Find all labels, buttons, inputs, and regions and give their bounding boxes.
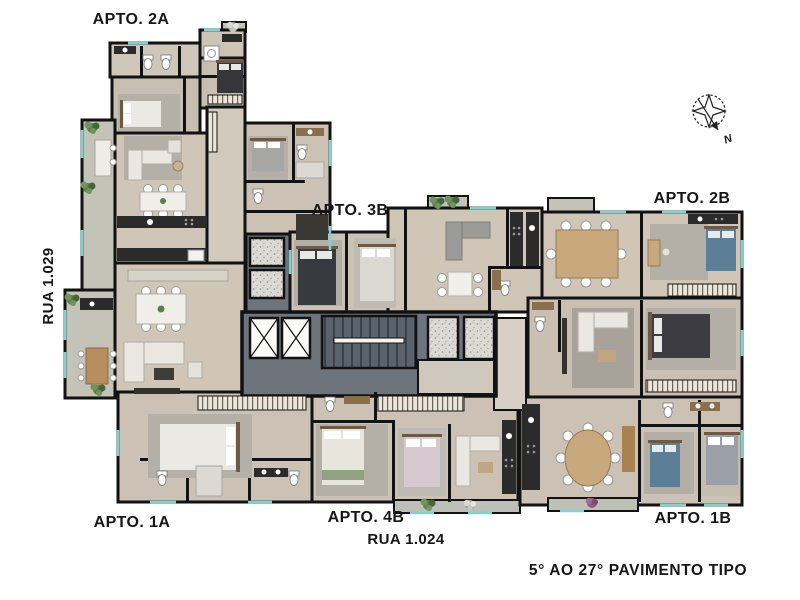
toilet-icon bbox=[500, 281, 510, 296]
floor-plan-page: N APTO. 2A APTO. 3B APTO. 2B APTO. 1A AP… bbox=[0, 0, 800, 600]
closet bbox=[208, 95, 242, 104]
vanity bbox=[492, 270, 501, 290]
closet bbox=[198, 396, 306, 410]
compass-north-label: N bbox=[722, 132, 735, 146]
toilet-icon bbox=[535, 317, 545, 332]
label-apto-1a: APTO. 1A bbox=[94, 514, 171, 531]
vanity bbox=[254, 468, 288, 477]
elevator-shaft bbox=[428, 317, 458, 359]
tv-console bbox=[134, 388, 180, 394]
bed bbox=[648, 312, 710, 360]
vanity bbox=[690, 402, 720, 411]
bed bbox=[704, 226, 738, 271]
street-label-left: RUA 1.029 bbox=[40, 247, 57, 324]
street-label-bottom: RUA 1.024 bbox=[367, 531, 445, 548]
wardrobe bbox=[208, 112, 217, 152]
dining-table bbox=[140, 185, 186, 219]
bed bbox=[160, 422, 240, 472]
dining-table bbox=[556, 423, 620, 492]
service-elevator bbox=[250, 270, 284, 298]
bed bbox=[402, 434, 442, 487]
label-apto-4b: APTO. 4B bbox=[328, 509, 405, 526]
elevator-shaft bbox=[464, 317, 494, 359]
toilet-icon bbox=[663, 403, 673, 418]
vanity bbox=[344, 396, 370, 404]
staircase bbox=[322, 316, 416, 368]
entry-hall bbox=[494, 318, 526, 410]
kitchen-counter bbox=[502, 420, 516, 494]
north-compass-icon: N bbox=[693, 95, 735, 147]
bed bbox=[216, 60, 244, 93]
label-apto-3b: APTO. 3B bbox=[312, 202, 389, 219]
toilet-icon bbox=[253, 189, 263, 204]
toilet-icon bbox=[325, 397, 335, 412]
vanity bbox=[532, 302, 554, 310]
bed bbox=[320, 426, 366, 485]
toilet-icon bbox=[297, 145, 307, 160]
gourmet-counter bbox=[80, 298, 113, 310]
balcony-table bbox=[86, 348, 108, 384]
closet bbox=[646, 380, 736, 392]
bed bbox=[120, 100, 161, 128]
closet bbox=[668, 284, 736, 296]
label-apto-2a: APTO. 2A bbox=[93, 11, 170, 28]
elevator-shaft bbox=[282, 318, 310, 358]
bed bbox=[296, 246, 338, 305]
floor-caption: 5° AO 27° PAVIMENTO TIPO bbox=[529, 562, 747, 579]
balcony-counter bbox=[95, 140, 111, 176]
kitchen-counter bbox=[522, 404, 540, 490]
elevator-shaft bbox=[250, 318, 278, 358]
toilet-icon bbox=[157, 471, 167, 486]
label-apto-2b: APTO. 2B bbox=[654, 190, 731, 207]
washer-icon bbox=[204, 46, 219, 61]
cabinet bbox=[622, 426, 635, 472]
chair bbox=[662, 248, 670, 256]
label-apto-1b: APTO. 1B bbox=[655, 510, 732, 527]
armchair bbox=[168, 140, 181, 153]
coffee-table bbox=[598, 350, 616, 362]
armchair bbox=[188, 362, 202, 378]
bed bbox=[250, 138, 286, 171]
service-elevator bbox=[250, 238, 284, 266]
bed bbox=[358, 244, 396, 301]
coffee-table bbox=[478, 462, 493, 473]
toilet-icon bbox=[289, 471, 299, 486]
dining-table bbox=[546, 221, 626, 287]
shower bbox=[196, 466, 222, 496]
counter bbox=[222, 34, 242, 42]
bed bbox=[704, 432, 740, 485]
balcony-4b bbox=[394, 500, 520, 513]
toilet-icon bbox=[143, 55, 153, 70]
toilet-icon bbox=[161, 55, 171, 70]
sideboard bbox=[128, 270, 228, 281]
bed bbox=[648, 440, 682, 487]
shower bbox=[296, 162, 324, 178]
kitchen-counter bbox=[688, 214, 738, 224]
side-table bbox=[173, 161, 183, 171]
closet bbox=[378, 396, 464, 411]
desk bbox=[648, 240, 660, 266]
dining-table bbox=[136, 287, 186, 332]
floor-plan-drawing: N APTO. 2A APTO. 3B APTO. 2B APTO. 1A AP… bbox=[0, 0, 800, 600]
coffee-table bbox=[154, 368, 174, 380]
tv-panel bbox=[562, 318, 567, 374]
